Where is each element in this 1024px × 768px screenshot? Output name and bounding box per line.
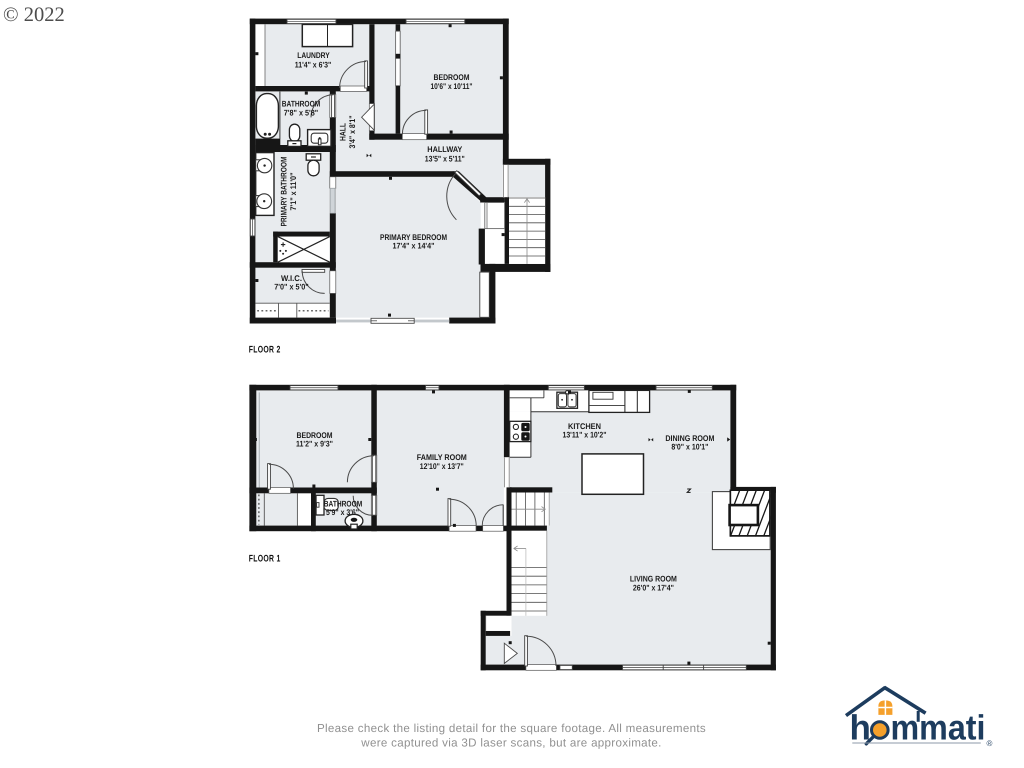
svg-text:PRIMARY BATHROOM: PRIMARY BATHROOM <box>279 156 288 226</box>
svg-text:Please check the listing detai: Please check the listing detail for the … <box>317 722 706 735</box>
svg-text:HALL: HALL <box>338 123 347 141</box>
svg-text:7'0" x 5'0": 7'0" x 5'0" <box>274 283 309 292</box>
svg-text:FLOOR 2: FLOOR 2 <box>249 344 281 355</box>
svg-text:7'8" x 5'8": 7'8" x 5'8" <box>284 108 319 117</box>
svg-text:LIVING ROOM: LIVING ROOM <box>630 575 677 584</box>
svg-text:®: ® <box>987 739 993 748</box>
svg-text:26'0" x 17'4": 26'0" x 17'4" <box>633 584 674 593</box>
svg-text:FLOOR 1: FLOOR 1 <box>249 553 281 564</box>
svg-text:11'2" x 9'3": 11'2" x 9'3" <box>296 440 333 449</box>
svg-text:FAMILY ROOM: FAMILY ROOM <box>417 453 467 462</box>
svg-text:BEDROOM: BEDROOM <box>434 73 470 82</box>
svg-text:7'1" x 11'0": 7'1" x 11'0" <box>289 172 298 210</box>
svg-text:were captured via 3D laser sca: were captured via 3D laser scans, but ar… <box>360 736 661 749</box>
svg-text:BATHROOM: BATHROOM <box>282 100 321 109</box>
svg-text:12'10" x 13'7": 12'10" x 13'7" <box>420 462 464 471</box>
svg-text:© 2022: © 2022 <box>3 4 65 26</box>
svg-text:8'0" x 10'1": 8'0" x 10'1" <box>671 443 708 452</box>
svg-text:LAUNDRY: LAUNDRY <box>297 51 330 60</box>
svg-text:10'6" x 10'11": 10'6" x 10'11" <box>431 82 473 91</box>
svg-text:mmati: mmati <box>891 709 986 748</box>
svg-text:13'5" x 5'11": 13'5" x 5'11" <box>425 154 465 163</box>
svg-text:13'11" x 10'2": 13'11" x 10'2" <box>563 430 607 439</box>
svg-text:3'4" x 8'1": 3'4" x 8'1" <box>348 115 357 148</box>
svg-text:5'9" x 3'6": 5'9" x 3'6" <box>326 508 359 517</box>
svg-text:17'4" x 14'4": 17'4" x 14'4" <box>393 241 435 250</box>
svg-text:11'4" x 6'3": 11'4" x 6'3" <box>295 61 332 70</box>
svg-text:HALLWAY: HALLWAY <box>427 145 462 154</box>
